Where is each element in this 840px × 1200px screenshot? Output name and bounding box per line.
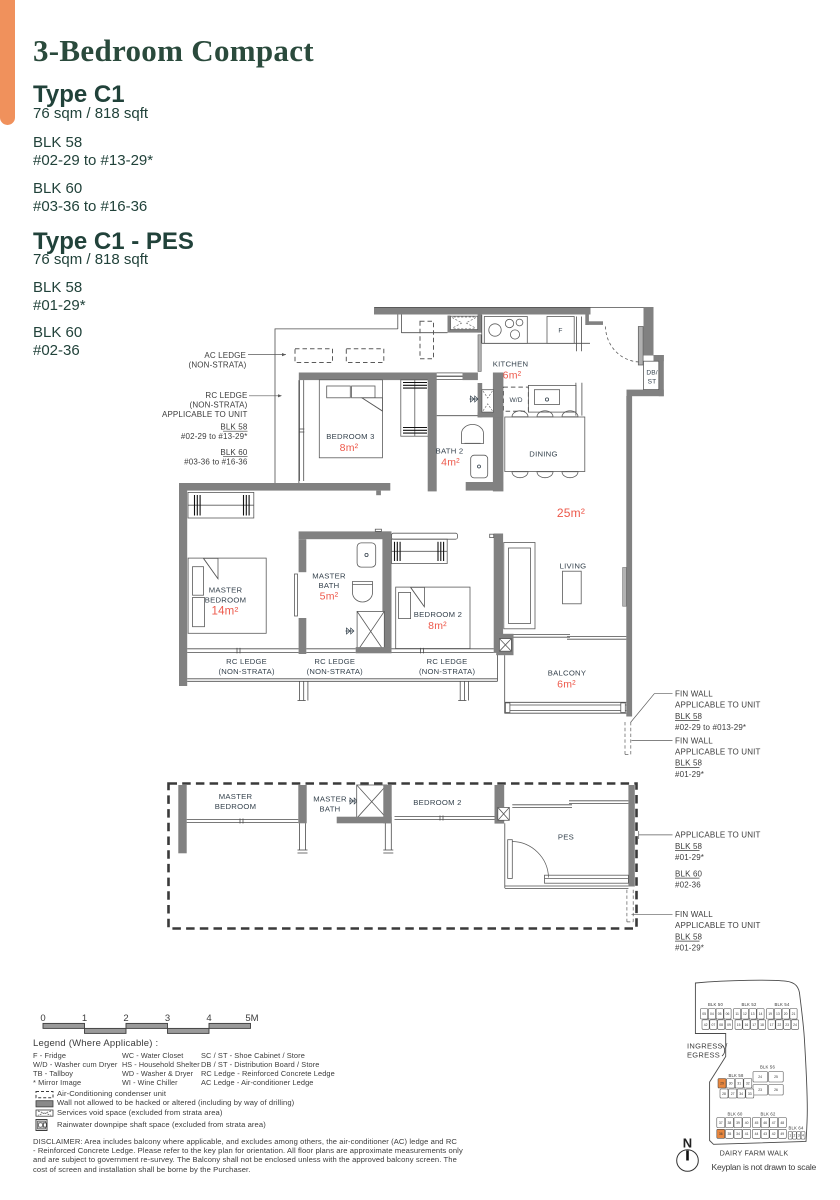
svg-text:06: 06 xyxy=(726,1012,730,1016)
svg-text:24: 24 xyxy=(758,1075,762,1079)
svg-text:3: 3 xyxy=(798,1134,800,1138)
svg-text:1: 1 xyxy=(82,1013,87,1024)
svg-text:3: 3 xyxy=(165,1013,170,1024)
svg-text:23: 23 xyxy=(758,1088,762,1092)
svg-text:BLK 62: BLK 62 xyxy=(761,1112,776,1117)
svg-text:BATH 2: BATH 2 xyxy=(436,447,464,456)
svg-text:DB/: DB/ xyxy=(646,370,657,377)
svg-text:APPLICABLE TO UNIT: APPLICABLE TO UNIT xyxy=(675,831,761,840)
svg-text:48: 48 xyxy=(780,1121,784,1125)
svg-text:BEDROOM 3: BEDROOM 3 xyxy=(326,432,374,441)
svg-text:FIN WALL: FIN WALL xyxy=(675,690,713,699)
svg-text:11: 11 xyxy=(735,1012,739,1016)
svg-text:38: 38 xyxy=(728,1121,732,1125)
svg-text:23: 23 xyxy=(785,1023,789,1027)
svg-text:46: 46 xyxy=(763,1121,767,1125)
svg-text:DAIRY FARM WALK: DAIRY FARM WALK xyxy=(720,1149,789,1158)
svg-text:BATH: BATH xyxy=(319,581,340,590)
svg-text:31: 31 xyxy=(737,1082,741,1086)
svg-text:BLK 60: BLK 60 xyxy=(675,869,703,878)
svg-text:Keyplan is not drawn to scale: Keyplan is not drawn to scale xyxy=(712,1162,817,1172)
svg-text:18: 18 xyxy=(760,1023,764,1027)
svg-text:BLK 58: BLK 58 xyxy=(675,932,703,941)
svg-text:37: 37 xyxy=(719,1121,723,1125)
svg-text:MASTER: MASTER xyxy=(209,586,243,595)
svg-text:43: 43 xyxy=(763,1132,767,1136)
svg-text:36: 36 xyxy=(719,1132,723,1136)
svg-text:33: 33 xyxy=(748,1092,752,1096)
svg-text:16: 16 xyxy=(745,1023,749,1027)
svg-text:34: 34 xyxy=(739,1092,743,1096)
svg-text:(NON-STRATA): (NON-STRATA) xyxy=(218,667,275,676)
svg-text:BEDROOM 2: BEDROOM 2 xyxy=(413,798,461,807)
svg-text:BLK 54: BLK 54 xyxy=(775,1002,790,1007)
svg-text:BLK 58: BLK 58 xyxy=(675,712,703,721)
svg-text:21: 21 xyxy=(792,1012,796,1016)
svg-text:#01-29*: #01-29* xyxy=(675,944,704,953)
svg-text:12: 12 xyxy=(743,1012,747,1016)
svg-text:BATH: BATH xyxy=(320,805,341,814)
svg-text:27: 27 xyxy=(731,1092,735,1096)
svg-text:PES: PES xyxy=(558,833,574,842)
svg-text:BEDROOM 2: BEDROOM 2 xyxy=(414,610,462,619)
svg-text:BLK 58: BLK 58 xyxy=(729,1073,744,1078)
svg-text:1: 1 xyxy=(789,1134,791,1138)
svg-text:APPLICABLE TO UNIT: APPLICABLE TO UNIT xyxy=(675,748,761,757)
svg-text:BLK 64: BLK 64 xyxy=(789,1126,804,1131)
svg-text:4: 4 xyxy=(802,1134,804,1138)
svg-text:42: 42 xyxy=(772,1132,776,1136)
svg-text:25m²: 25m² xyxy=(557,506,585,520)
svg-text:FIN WALL: FIN WALL xyxy=(675,736,713,745)
svg-text:30: 30 xyxy=(729,1082,733,1086)
svg-text:BLK 52: BLK 52 xyxy=(742,1002,757,1007)
svg-text:BLK 58: BLK 58 xyxy=(675,842,703,851)
svg-text:09: 09 xyxy=(727,1023,731,1027)
svg-text:5M: 5M xyxy=(245,1013,258,1024)
svg-text:4: 4 xyxy=(206,1013,211,1024)
svg-text:29: 29 xyxy=(720,1082,724,1086)
svg-text:6m²: 6m² xyxy=(503,370,522,382)
svg-text:LIVING: LIVING xyxy=(560,562,587,571)
svg-text:14m²: 14m² xyxy=(211,606,238,618)
svg-text:45: 45 xyxy=(755,1121,759,1125)
svg-text:APPLICABLE TO UNIT: APPLICABLE TO UNIT xyxy=(675,701,761,710)
svg-text:APPLICABLE TO UNIT: APPLICABLE TO UNIT xyxy=(675,921,761,930)
svg-text:BLK 50: BLK 50 xyxy=(708,1002,723,1007)
svg-text:BEDROOM: BEDROOM xyxy=(205,596,246,605)
svg-text:(NON-STRATA): (NON-STRATA) xyxy=(189,360,247,369)
svg-text:ST: ST xyxy=(648,379,657,386)
svg-text:RC LEDGE: RC LEDGE xyxy=(314,657,355,666)
svg-text:28: 28 xyxy=(722,1092,726,1096)
svg-text:RC LEDGE: RC LEDGE xyxy=(427,657,468,666)
svg-text:40: 40 xyxy=(745,1121,749,1125)
svg-text:BLK 60: BLK 60 xyxy=(220,448,248,457)
svg-text:RC LEDGE: RC LEDGE xyxy=(226,657,267,666)
svg-text:24: 24 xyxy=(793,1023,797,1027)
svg-text:2: 2 xyxy=(794,1134,796,1138)
svg-text:42: 42 xyxy=(704,1023,708,1027)
svg-text:35: 35 xyxy=(728,1132,732,1136)
svg-text:22: 22 xyxy=(778,1023,782,1027)
svg-text:2: 2 xyxy=(123,1013,128,1024)
svg-text:#02-29 to #013-29*: #02-29 to #013-29* xyxy=(675,723,746,732)
svg-text:32: 32 xyxy=(746,1082,750,1086)
svg-text:#01-29*: #01-29* xyxy=(675,853,704,862)
svg-text:0: 0 xyxy=(40,1013,45,1024)
svg-text:RC LEDGE: RC LEDGE xyxy=(205,391,247,400)
svg-text:#01-29*: #01-29* xyxy=(675,770,704,779)
svg-text:8m²: 8m² xyxy=(340,442,359,454)
svg-text:20: 20 xyxy=(784,1012,788,1016)
svg-text:MASTER: MASTER xyxy=(219,792,253,801)
svg-text:49: 49 xyxy=(780,1132,784,1136)
svg-text:APPLICABLE TO UNIT: APPLICABLE TO UNIT xyxy=(162,410,248,419)
svg-text:F: F xyxy=(558,328,562,335)
svg-text:47: 47 xyxy=(772,1121,776,1125)
svg-text:34: 34 xyxy=(736,1132,740,1136)
svg-text:17: 17 xyxy=(752,1023,756,1027)
svg-text:DINING: DINING xyxy=(529,450,557,459)
svg-text:39: 39 xyxy=(736,1121,740,1125)
svg-text:(NON-STRATA): (NON-STRATA) xyxy=(419,667,476,676)
svg-text:(NON-STRATA): (NON-STRATA) xyxy=(307,667,364,676)
svg-text:41: 41 xyxy=(745,1132,749,1136)
svg-text:25: 25 xyxy=(774,1075,778,1079)
svg-text:W/D: W/D xyxy=(509,397,522,404)
svg-text:07: 07 xyxy=(712,1023,716,1027)
svg-text:5m²: 5m² xyxy=(320,591,339,603)
svg-text:BLK 56: BLK 56 xyxy=(760,1065,775,1070)
svg-text:KITCHEN: KITCHEN xyxy=(493,360,529,369)
svg-text:08: 08 xyxy=(719,1023,723,1027)
svg-text:BLK 58: BLK 58 xyxy=(675,759,703,768)
svg-text:(NON-STRATA): (NON-STRATA) xyxy=(190,401,248,410)
svg-text:#02-36: #02-36 xyxy=(675,881,701,890)
svg-text:BLK 58: BLK 58 xyxy=(220,423,248,432)
svg-text:13: 13 xyxy=(776,1012,780,1016)
svg-text:8m²: 8m² xyxy=(428,620,447,632)
svg-text:MASTER: MASTER xyxy=(313,795,347,804)
svg-text:19: 19 xyxy=(768,1012,772,1016)
svg-text:BALCONY: BALCONY xyxy=(548,669,587,678)
svg-text:04: 04 xyxy=(710,1012,714,1016)
svg-text:MASTER: MASTER xyxy=(312,572,346,581)
svg-text:FIN WALL: FIN WALL xyxy=(675,910,713,919)
svg-text:05: 05 xyxy=(718,1012,722,1016)
svg-text:EGRESS: EGRESS xyxy=(687,1051,720,1060)
svg-text:26: 26 xyxy=(774,1088,778,1092)
svg-text:4m²: 4m² xyxy=(441,457,460,469)
svg-text:AC LEDGE: AC LEDGE xyxy=(204,351,246,360)
svg-text:05: 05 xyxy=(702,1012,706,1016)
svg-text:44: 44 xyxy=(755,1132,759,1136)
svg-text:INGRESS /: INGRESS / xyxy=(687,1042,728,1051)
svg-text:15: 15 xyxy=(737,1023,741,1027)
svg-text:#02-29 to #13-29*: #02-29 to #13-29* xyxy=(181,432,248,441)
svg-text:#03-36 to #16-36: #03-36 to #16-36 xyxy=(184,458,248,467)
svg-text:6m²: 6m² xyxy=(557,679,576,691)
svg-text:BLK 60: BLK 60 xyxy=(728,1112,743,1117)
svg-text:BEDROOM: BEDROOM xyxy=(215,802,256,811)
svg-text:14: 14 xyxy=(759,1012,763,1016)
svg-text:17: 17 xyxy=(770,1023,774,1027)
svg-text:13: 13 xyxy=(751,1012,755,1016)
